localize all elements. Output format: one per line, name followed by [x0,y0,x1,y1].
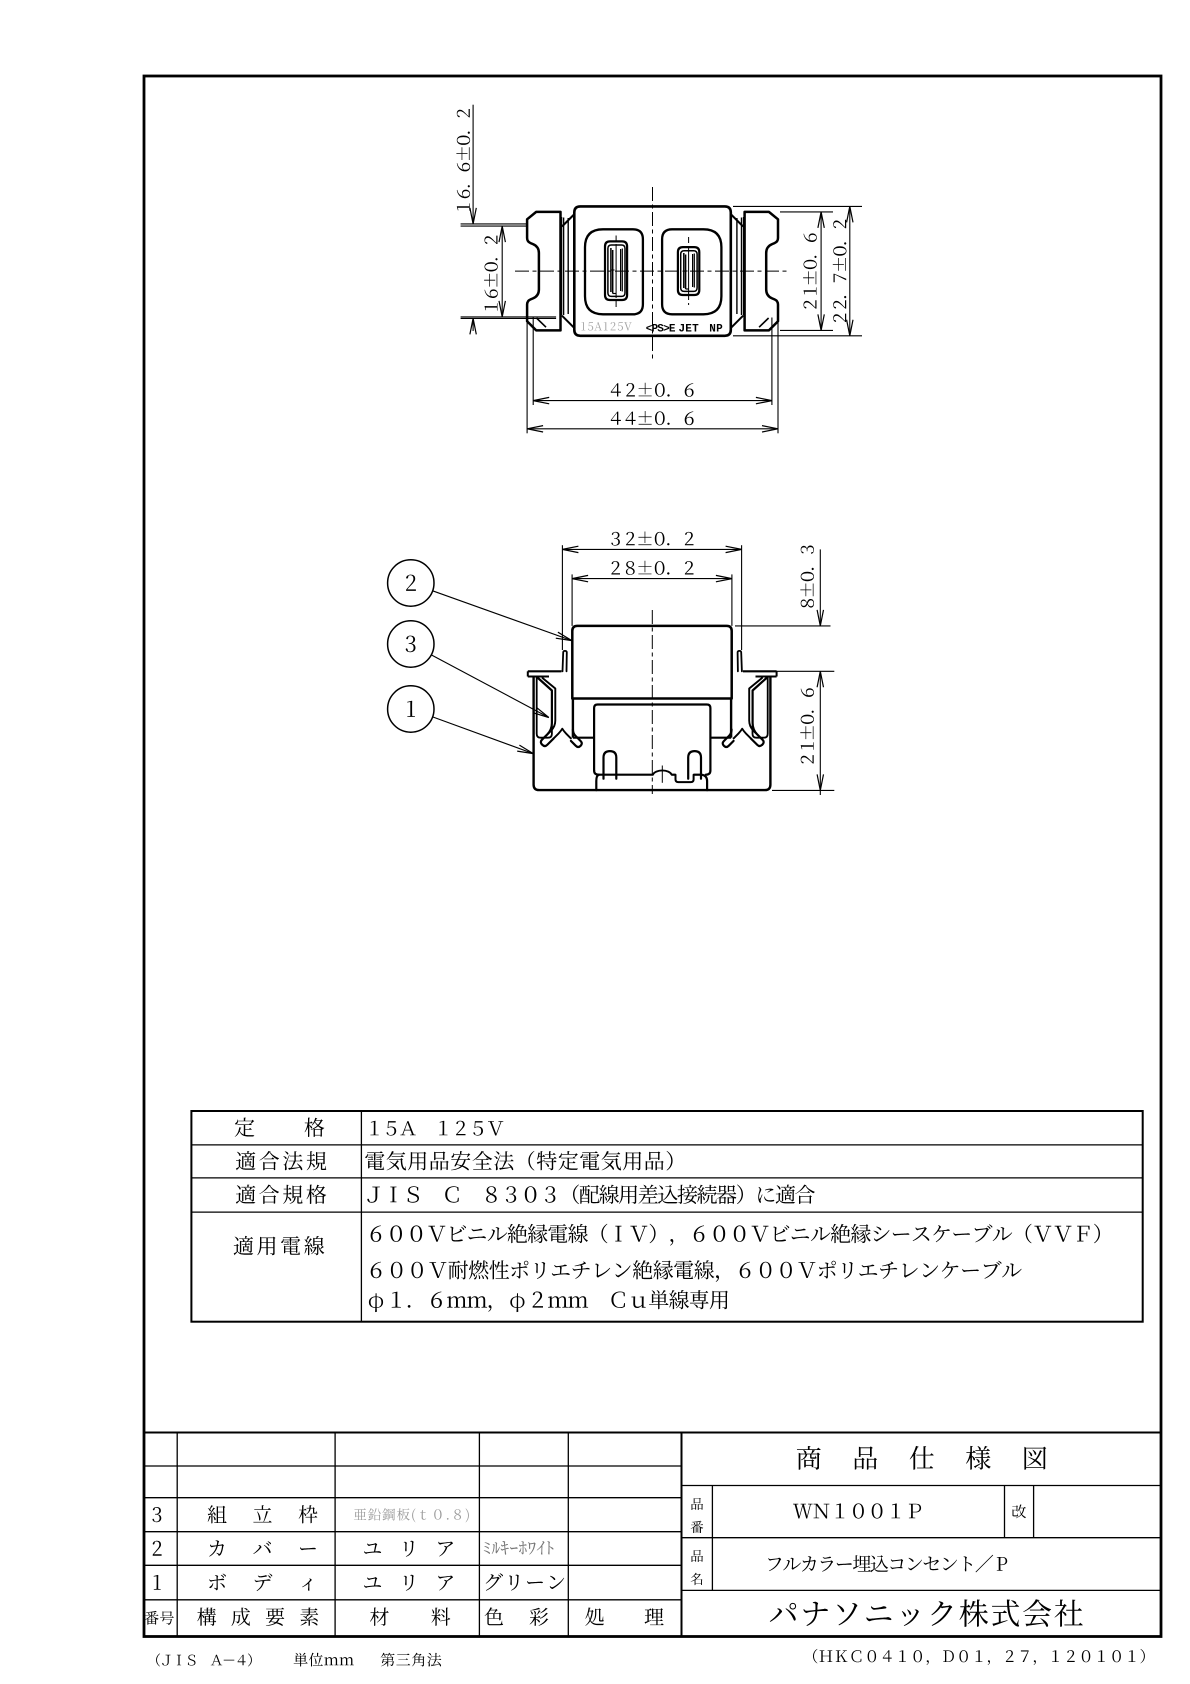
svg-text:JET: JET [679,324,700,336]
svg-text:NP: NP [709,324,723,336]
svg-text:<PS>E: <PS>E [646,324,676,336]
